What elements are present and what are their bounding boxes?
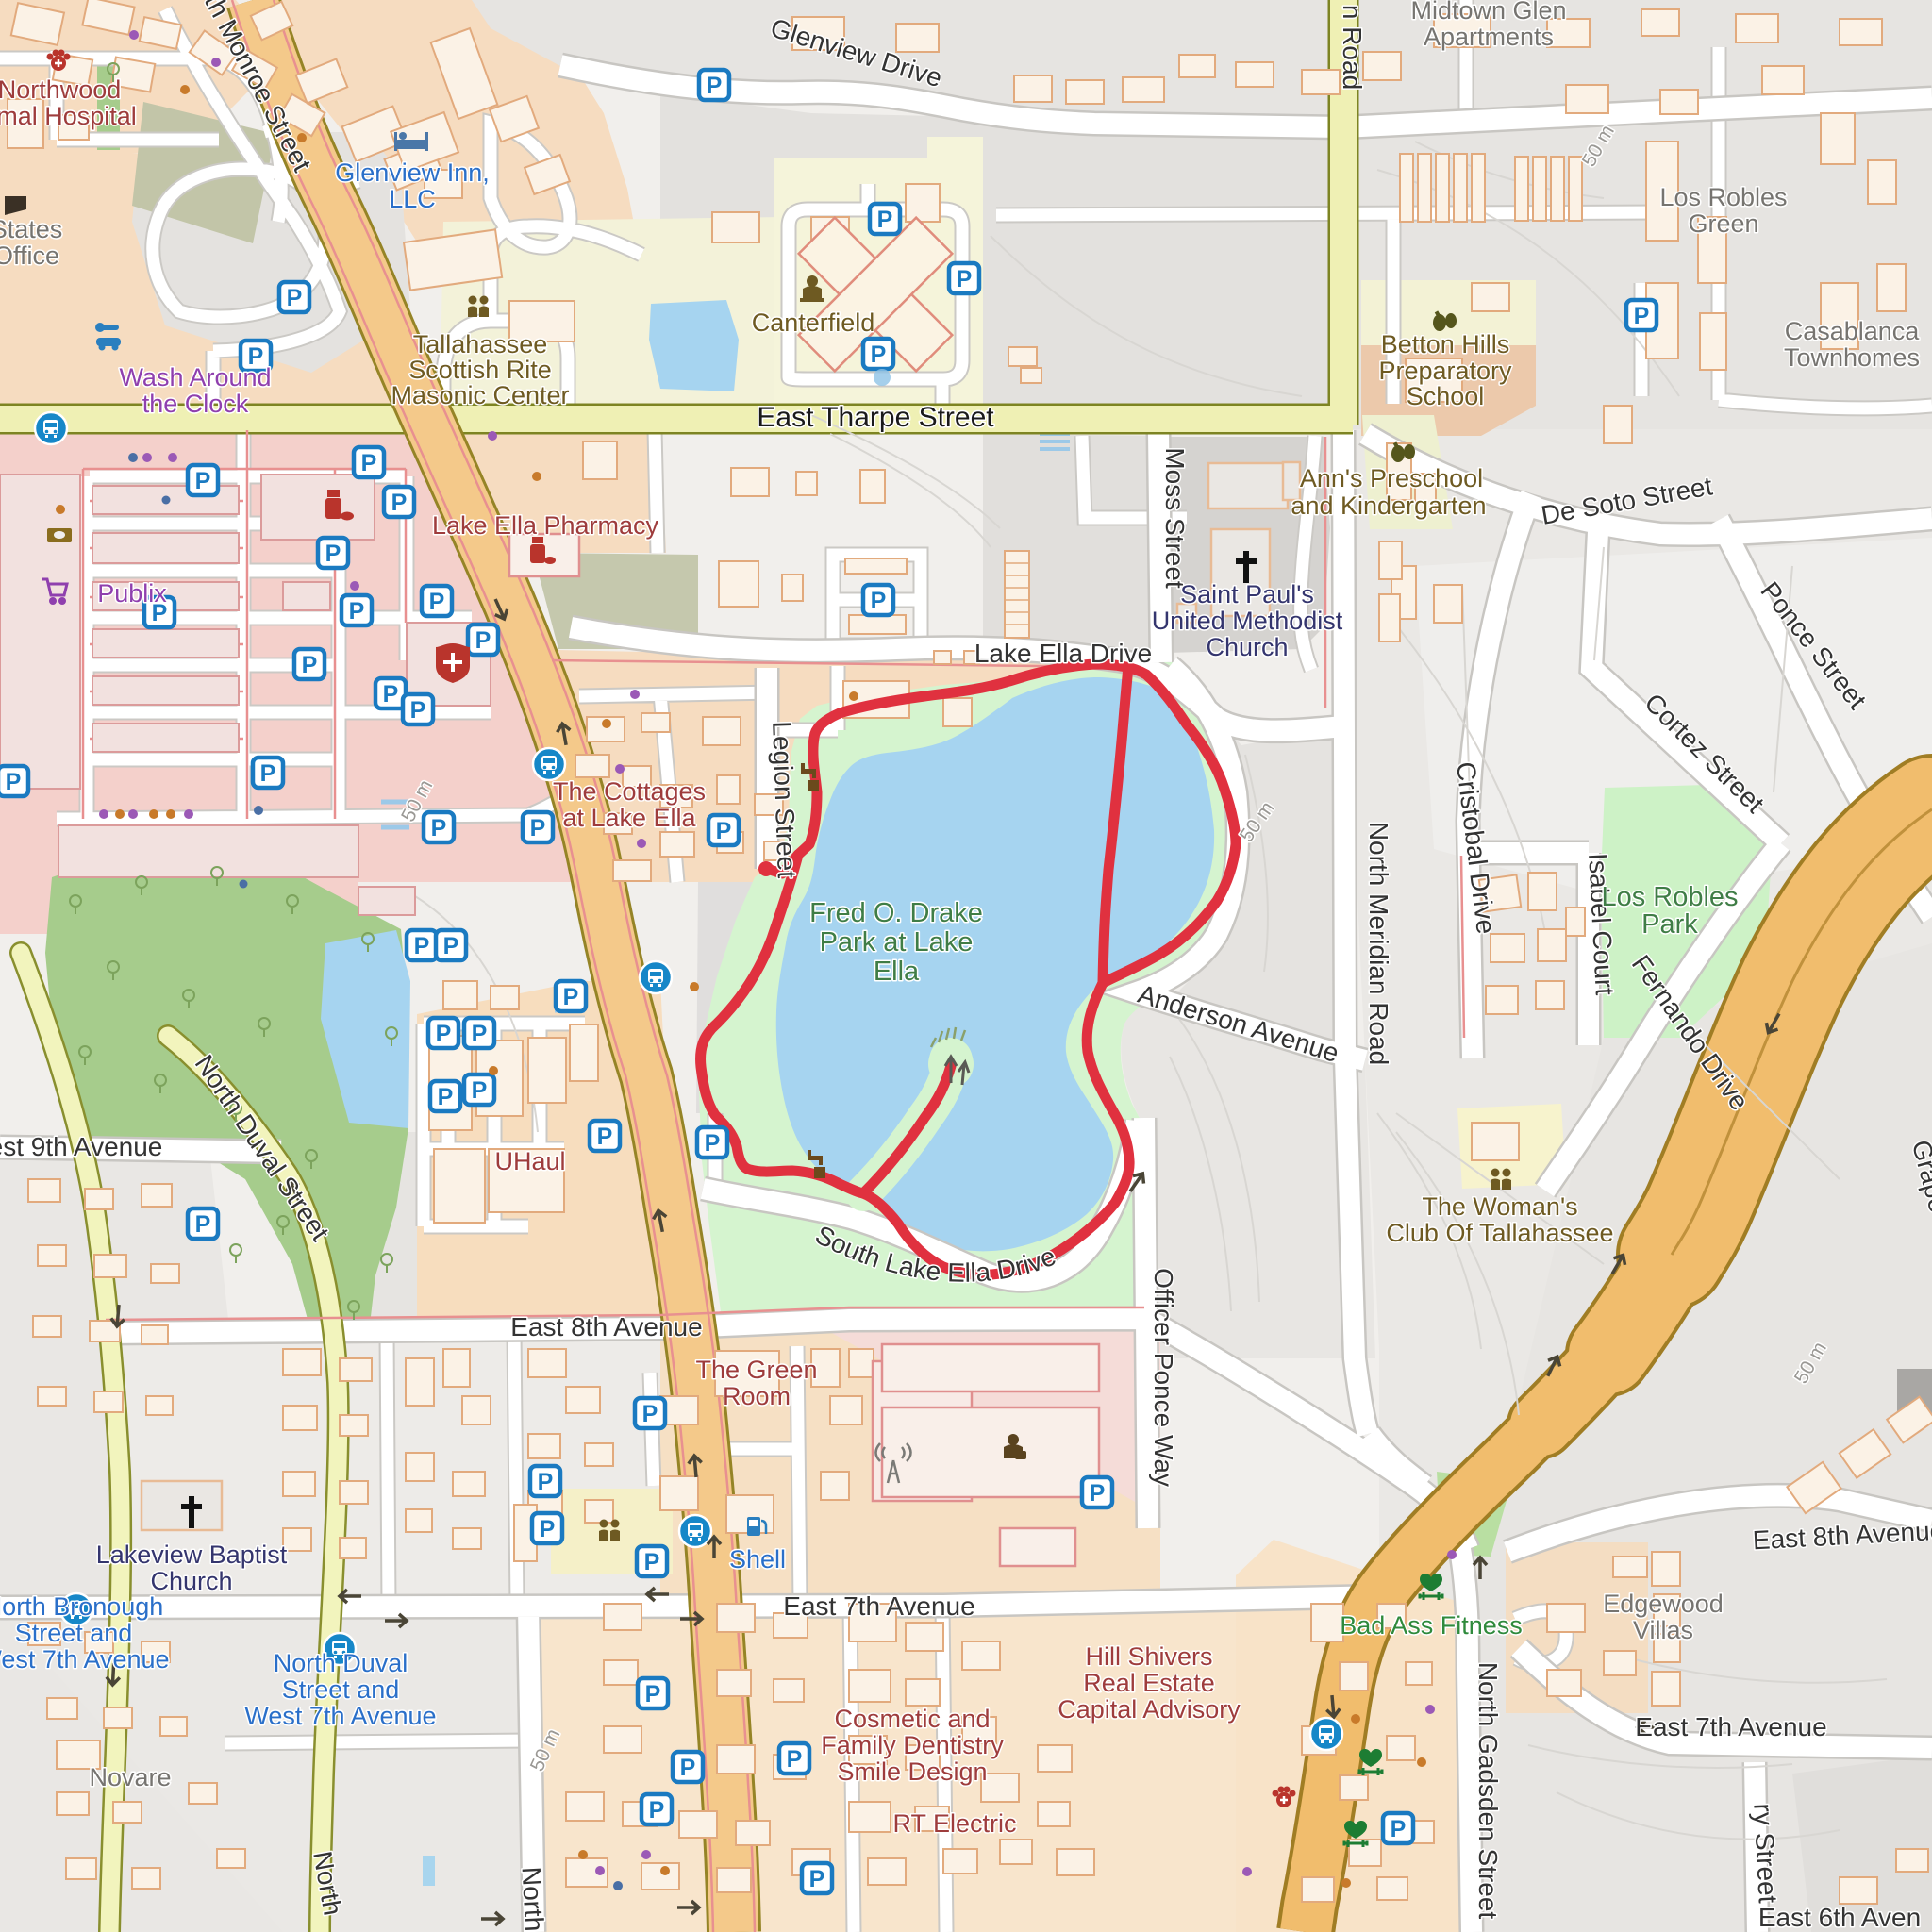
svg-text:East Tharpe Street: East Tharpe Street <box>757 402 994 433</box>
svg-text:North Bronough: North Bronough <box>0 1592 163 1621</box>
svg-text:North Gadsden Street: North Gadsden Street <box>1474 1662 1503 1920</box>
svg-text:Lake Ella Pharmacy: Lake Ella Pharmacy <box>432 511 659 540</box>
svg-text:Villas: Villas <box>1633 1616 1693 1644</box>
svg-text:North Duval: North Duval <box>274 1649 408 1677</box>
svg-text:Capital Advisory: Capital Advisory <box>1058 1695 1241 1724</box>
svg-text:Real Estate: Real Estate <box>1083 1669 1215 1697</box>
svg-text:RT Electric: RT Electric <box>892 1809 1016 1838</box>
svg-text:Publix: Publix <box>97 579 167 608</box>
svg-text:Officer Ponce Way: Officer Ponce Way <box>1149 1268 1178 1487</box>
svg-text:Midtown Glen: Midtown Glen <box>1410 0 1566 25</box>
svg-text:the Clock: the Clock <box>142 390 249 418</box>
svg-text:Saint Paul's: Saint Paul's <box>1180 580 1314 608</box>
svg-text:Betton Hills: Betton Hills <box>1381 330 1510 358</box>
svg-text:est 9th Avenue: est 9th Avenue <box>0 1132 162 1161</box>
svg-text:Moss Street: Moss Street <box>1160 447 1190 589</box>
svg-text:The Green: The Green <box>695 1356 817 1384</box>
svg-text:The Woman's: The Woman's <box>1422 1192 1577 1221</box>
svg-text:Shell: Shell <box>729 1545 786 1574</box>
svg-text:States: States <box>0 215 62 243</box>
svg-text:Legion Street: Legion Street <box>767 721 802 879</box>
svg-text:Apartments: Apartments <box>1424 23 1554 51</box>
svg-text:Street and: Street and <box>282 1675 400 1704</box>
svg-text:Preparatory: Preparatory <box>1378 357 1512 385</box>
svg-text:Northwood: Northwood <box>0 75 121 104</box>
svg-text:Edgewood: Edgewood <box>1603 1590 1724 1618</box>
svg-text:Room: Room <box>723 1382 791 1410</box>
svg-text:Church: Church <box>1206 633 1288 661</box>
svg-text:School: School <box>1407 382 1485 410</box>
svg-text:LLC: LLC <box>389 185 436 213</box>
svg-text:East 7th Avenue: East 7th Avenue <box>1635 1712 1826 1741</box>
svg-text:Tallahassee: Tallahassee <box>413 330 548 358</box>
svg-text:Lake Ella Drive: Lake Ella Drive <box>974 639 1152 668</box>
svg-text:Street and: Street and <box>15 1619 133 1647</box>
svg-text:Casablanca: Casablanca <box>1785 317 1921 345</box>
svg-text:Novare: Novare <box>89 1763 171 1791</box>
svg-text:Cosmetic and: Cosmetic and <box>834 1705 990 1733</box>
svg-text:West 7th Avenue: West 7th Avenue <box>244 1702 436 1730</box>
svg-text:Ella: Ella <box>874 957 920 987</box>
svg-text:nimal Hospital: nimal Hospital <box>0 102 137 130</box>
svg-text:Fred O. Drake: Fred O. Drake <box>809 898 983 928</box>
svg-text:The Cottages: The Cottages <box>553 777 706 806</box>
svg-text:West 7th Avenue: West 7th Avenue <box>0 1645 170 1674</box>
svg-text:Townhomes: Townhomes <box>1784 343 1920 372</box>
svg-text:East 8th Avenue: East 8th Avenue <box>510 1312 702 1341</box>
svg-text:Family Dentistry: Family Dentistry <box>821 1731 1004 1759</box>
svg-text:Park: Park <box>1641 909 1698 940</box>
svg-text:n Road: n Road <box>1338 5 1367 90</box>
svg-text:Bad Ass Fitness: Bad Ass Fitness <box>1340 1611 1523 1640</box>
svg-text:Lakeview Baptist: Lakeview Baptist <box>96 1541 288 1569</box>
svg-text:Los Robles: Los Robles <box>1601 882 1738 912</box>
svg-text:Hill Shivers: Hill Shivers <box>1085 1642 1212 1671</box>
svg-text:North A: North A <box>517 1866 551 1932</box>
svg-text:Los Robles: Los Robles <box>1659 183 1787 211</box>
svg-text:United Methodist: United Methodist <box>1152 607 1343 635</box>
svg-text:Masonic Center: Masonic Center <box>391 381 569 409</box>
svg-text:Scottish Rite: Scottish Rite <box>408 356 552 384</box>
svg-text:Office: Office <box>0 241 59 270</box>
svg-text:North Meridian Road: North Meridian Road <box>1364 822 1393 1065</box>
svg-text:Club Of Tallahassee: Club Of Tallahassee <box>1386 1219 1613 1247</box>
svg-text:ry Street: ry Street <box>1748 1803 1783 1905</box>
svg-text:Canterfield: Canterfield <box>752 308 875 337</box>
svg-text:East 7th Avenue: East 7th Avenue <box>783 1591 974 1621</box>
svg-text:Church: Church <box>150 1567 232 1595</box>
svg-text:Green: Green <box>1688 209 1758 238</box>
svg-text:Ann's Preschool: Ann's Preschool <box>1300 464 1483 492</box>
svg-text:Glenview Inn,: Glenview Inn, <box>335 158 490 187</box>
svg-text:Smile Design: Smile Design <box>837 1757 987 1786</box>
svg-text:East 6th Aven: East 6th Aven <box>1758 1903 1921 1932</box>
svg-text:at Lake Ella: at Lake Ella <box>562 804 696 832</box>
svg-text:Wash Around: Wash Around <box>119 363 271 391</box>
svg-text:Park at Lake: Park at Lake <box>820 927 974 958</box>
svg-text:and Kindergarten: and Kindergarten <box>1291 491 1486 520</box>
svg-text:UHaul: UHaul <box>494 1147 565 1175</box>
